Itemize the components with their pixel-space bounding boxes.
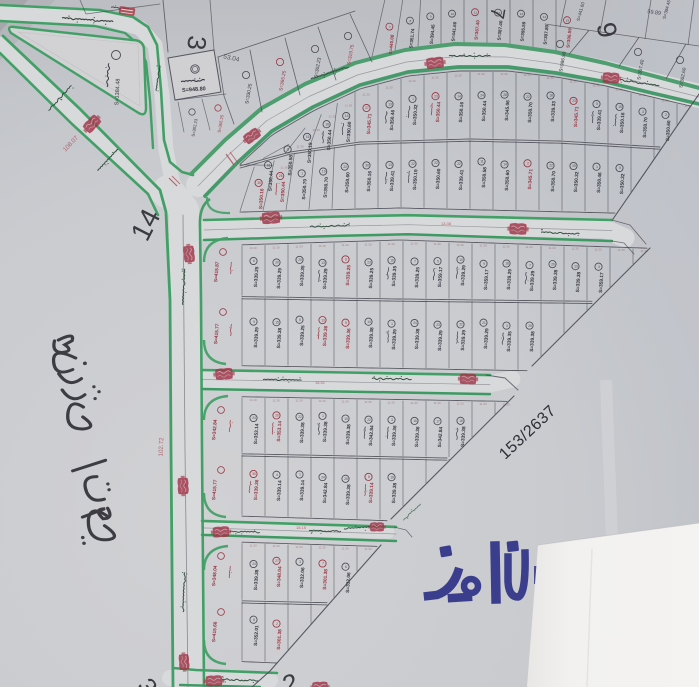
svg-text:11.30: 11.30 [362, 93, 370, 97]
svg-text:7: 7 [414, 260, 416, 264]
svg-text:3: 3 [642, 110, 644, 114]
svg-text:18: 18 [505, 262, 509, 266]
svg-text:3: 3 [299, 560, 301, 564]
svg-text:22: 22 [343, 165, 347, 169]
svg-text:11.30: 11.30 [296, 144, 304, 148]
svg-text:5: 5 [619, 166, 621, 170]
svg-text:1: 1 [391, 322, 393, 326]
svg-text:11.30: 11.30 [364, 243, 372, 247]
svg-text:11.30: 11.30 [502, 402, 510, 406]
svg-text:19: 19 [390, 475, 394, 479]
svg-text:9: 9 [430, 15, 432, 19]
svg-text:11.30: 11.30 [295, 245, 303, 249]
svg-text:13: 13 [388, 103, 392, 107]
svg-text:11.30: 11.30 [280, 166, 288, 170]
svg-text:13: 13 [321, 261, 325, 265]
svg-text:11.30: 11.30 [500, 72, 508, 76]
svg-text:13: 13 [321, 318, 325, 322]
svg-text:8: 8 [368, 475, 370, 479]
svg-text:22: 22 [434, 161, 438, 165]
svg-text:24: 24 [252, 562, 256, 566]
svg-text:23: 23 [572, 99, 576, 103]
svg-text:30: 30 [365, 164, 369, 168]
svg-text:11.30: 11.30 [387, 400, 395, 404]
svg-text:11.30: 11.30 [318, 399, 326, 403]
svg-text:11.30: 11.30 [341, 400, 349, 404]
svg-text:8: 8 [410, 19, 412, 23]
svg-text:11.30: 11.30 [318, 546, 326, 550]
svg-text:3: 3 [598, 265, 600, 269]
svg-text:25: 25 [572, 164, 576, 168]
svg-text:13: 13 [388, 163, 392, 167]
svg-text:22: 22 [298, 415, 302, 419]
svg-text:11.30: 11.30 [341, 243, 349, 247]
svg-text:16: 16 [390, 259, 394, 263]
svg-text:22: 22 [367, 418, 371, 422]
svg-text:1: 1 [596, 165, 598, 169]
svg-text:11.30: 11.30 [410, 401, 418, 405]
svg-text:7: 7 [529, 263, 531, 267]
svg-text:22: 22 [411, 162, 415, 166]
svg-text:2: 2 [665, 113, 667, 117]
svg-text:8: 8 [253, 618, 255, 622]
svg-text:22: 22 [549, 164, 553, 168]
svg-text:14: 14 [457, 95, 461, 99]
svg-text:14: 14 [345, 114, 349, 118]
svg-text:13: 13 [574, 264, 578, 268]
svg-text:11.30: 11.30 [525, 245, 533, 249]
svg-text:22: 22 [459, 323, 463, 327]
svg-text:25: 25 [344, 477, 348, 481]
svg-text:24: 24 [321, 475, 325, 479]
svg-text:23: 23 [436, 323, 440, 327]
svg-text:20: 20 [551, 262, 555, 266]
svg-text:11.30: 11.30 [431, 76, 439, 80]
svg-text:24: 24 [413, 321, 417, 325]
svg-text:15: 15 [566, 18, 570, 22]
svg-text:11.30: 11.30 [594, 247, 602, 251]
svg-text:11.30: 11.30 [433, 242, 441, 246]
svg-text:16: 16 [459, 419, 463, 423]
svg-text:20: 20 [275, 261, 279, 265]
svg-text:18.15: 18.15 [296, 525, 307, 530]
svg-text:10: 10 [344, 417, 348, 421]
svg-text:24: 24 [480, 93, 484, 97]
svg-text:11.30: 11.30 [479, 402, 487, 406]
svg-text:11.30: 11.30 [364, 400, 372, 404]
svg-text:11.30: 11.30 [456, 243, 464, 247]
svg-text:27: 27 [365, 106, 369, 110]
svg-text:25: 25 [528, 324, 532, 328]
svg-text:11.30: 11.30 [318, 244, 326, 248]
svg-text:11.30: 11.30 [502, 244, 510, 248]
svg-text:11.30: 11.30 [329, 115, 337, 119]
svg-text:11.30: 11.30 [433, 401, 441, 405]
svg-text:10: 10 [459, 258, 463, 262]
svg-text:1: 1 [301, 172, 303, 176]
svg-text:11: 11 [474, 10, 477, 14]
svg-text:23: 23 [367, 261, 371, 265]
svg-text:30: 30 [252, 472, 256, 476]
svg-text:11.30: 11.30 [272, 245, 280, 249]
svg-text:11.30: 11.30 [385, 85, 393, 89]
svg-text:5: 5 [299, 318, 301, 322]
svg-text:1: 1 [412, 97, 414, 101]
svg-text:11.30: 11.30 [345, 103, 353, 107]
svg-text:11.30: 11.30 [364, 547, 372, 551]
svg-text:11.30: 11.30 [454, 73, 462, 77]
svg-text:11: 11 [480, 160, 484, 164]
svg-text:18: 18 [549, 94, 553, 98]
svg-text:11.30: 11.30 [479, 244, 487, 248]
svg-text:102.72: 102.72 [158, 437, 166, 457]
svg-text:16.51: 16.51 [315, 380, 326, 385]
svg-text:14: 14 [367, 320, 371, 324]
svg-text:1: 1 [322, 414, 324, 418]
svg-text:11.30: 11.30 [640, 249, 648, 253]
svg-text:23: 23 [434, 94, 438, 98]
svg-text:18: 18 [267, 163, 271, 167]
svg-text:27: 27 [275, 559, 279, 563]
svg-text:7: 7 [322, 562, 324, 566]
svg-text:9: 9 [253, 320, 255, 324]
svg-text:5: 5 [437, 259, 439, 263]
svg-text:7: 7 [389, 25, 391, 29]
svg-text:11.30: 11.30 [548, 246, 556, 250]
svg-text:11.30: 11.30 [295, 399, 303, 403]
svg-text:9: 9 [345, 321, 347, 325]
svg-text:15: 15 [306, 135, 310, 139]
svg-text:11.30: 11.30 [410, 241, 418, 245]
svg-text:13.38: 13.38 [441, 221, 452, 226]
svg-text:6: 6 [253, 259, 255, 263]
svg-text:28: 28 [503, 93, 507, 97]
svg-text:18: 18 [325, 122, 329, 126]
svg-text:11.30: 11.30 [617, 248, 625, 252]
svg-text:11.30: 11.30 [456, 402, 464, 406]
svg-text:14: 14 [503, 163, 507, 167]
svg-text:30: 30 [257, 181, 261, 185]
svg-text:22: 22 [526, 95, 530, 99]
svg-text:11.30: 11.30 [408, 79, 416, 83]
svg-text:11.30: 11.30 [249, 246, 257, 250]
svg-text:11.30: 11.30 [295, 545, 303, 549]
svg-text:2: 2 [276, 622, 278, 626]
svg-text:11.30: 11.30 [249, 543, 257, 547]
svg-text:6: 6 [345, 258, 347, 262]
svg-text:1: 1 [299, 473, 301, 477]
svg-text:15: 15 [618, 105, 622, 109]
svg-text:6: 6 [345, 565, 347, 569]
svg-text:5: 5 [596, 102, 598, 106]
svg-text:20: 20 [275, 414, 279, 418]
svg-text:11.30: 11.30 [341, 546, 349, 550]
svg-text:13: 13 [520, 12, 524, 16]
svg-text:4: 4 [276, 473, 278, 477]
svg-text:26: 26 [279, 174, 283, 178]
svg-text:10: 10 [451, 12, 455, 16]
svg-text:11.30: 11.30 [272, 398, 280, 402]
svg-text:11.30: 11.30 [249, 398, 257, 402]
svg-text:2: 2 [527, 162, 529, 166]
svg-text:14: 14 [543, 15, 547, 19]
svg-text:11.30: 11.30 [477, 72, 485, 76]
svg-text:21: 21 [482, 321, 486, 325]
svg-text:19: 19 [322, 170, 326, 174]
svg-text:24: 24 [252, 416, 256, 420]
svg-text:11.30: 11.30 [387, 242, 395, 246]
svg-text:11.30: 11.30 [571, 247, 579, 251]
svg-text:22: 22 [457, 162, 461, 166]
svg-text:3: 3 [506, 324, 508, 328]
svg-text:9: 9 [483, 262, 485, 266]
svg-text:20: 20 [298, 258, 302, 262]
svg-text:15: 15 [275, 320, 279, 324]
svg-text:16: 16 [413, 419, 417, 423]
svg-text:3: 3 [391, 418, 393, 422]
svg-text:17: 17 [436, 419, 440, 423]
svg-text:11.30: 11.30 [272, 544, 280, 548]
